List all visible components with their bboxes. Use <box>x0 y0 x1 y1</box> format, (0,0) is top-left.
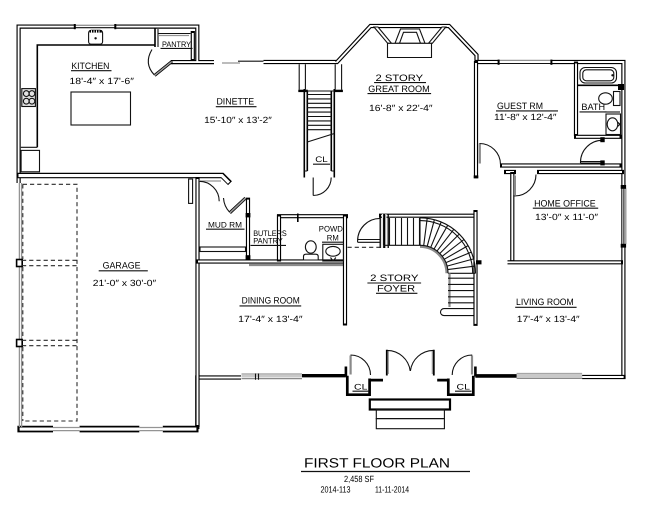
svg-text:CL: CL <box>315 155 328 164</box>
svg-text:MUD RM: MUD RM <box>208 220 242 229</box>
svg-text:PANTRY: PANTRY <box>162 40 192 49</box>
svg-text:13'-0″ x 11'-0″: 13'-0″ x 11'-0″ <box>535 212 599 222</box>
svg-text:2,458 SF: 2,458 SF <box>344 474 374 484</box>
svg-text:21'-0″ x 30'-0″: 21'-0″ x 30'-0″ <box>93 278 157 288</box>
svg-text:17'-4″ x 13'-4″: 17'-4″ x 13'-4″ <box>517 314 581 324</box>
svg-text:DINETTE: DINETTE <box>216 96 254 106</box>
svg-text:RM: RM <box>327 233 339 242</box>
svg-text:GREAT ROOM: GREAT ROOM <box>368 84 429 94</box>
svg-text:18'-4″ x 17'-6″: 18'-4″ x 17'-6″ <box>69 76 135 86</box>
svg-text:2 STORY: 2 STORY <box>376 73 424 83</box>
svg-text:LIVING ROOM: LIVING ROOM <box>516 297 574 307</box>
svg-text:16'-8″ x 22'-4″: 16'-8″ x 22'-4″ <box>369 103 434 113</box>
svg-text:17'-4″ x 13'-4″: 17'-4″ x 13'-4″ <box>238 314 303 324</box>
svg-text:FOYER: FOYER <box>377 283 416 293</box>
svg-text:HOME OFFICE: HOME OFFICE <box>534 198 596 208</box>
svg-text:11-11-2014: 11-11-2014 <box>375 485 409 495</box>
svg-text:KITCHEN: KITCHEN <box>71 61 109 71</box>
svg-text:FIRST FLOOR PLAN: FIRST FLOOR PLAN <box>304 456 450 471</box>
svg-text:POWD: POWD <box>319 225 343 234</box>
svg-text:2 STORY: 2 STORY <box>370 273 418 283</box>
svg-text:GARAGE: GARAGE <box>103 261 141 271</box>
svg-text:PANTRY: PANTRY <box>253 236 283 245</box>
svg-text:GUEST RM: GUEST RM <box>497 101 543 111</box>
svg-text:DINING ROOM: DINING ROOM <box>242 296 300 306</box>
svg-text:CL: CL <box>354 382 368 391</box>
svg-text:BATH: BATH <box>581 102 605 112</box>
svg-text:CL: CL <box>457 382 471 391</box>
svg-text:2014-113: 2014-113 <box>321 485 351 495</box>
svg-text:11'-8″ x 12'-4″: 11'-8″ x 12'-4″ <box>494 112 557 122</box>
svg-text:15'-10″ x 13'-2″: 15'-10″ x 13'-2″ <box>204 115 273 125</box>
